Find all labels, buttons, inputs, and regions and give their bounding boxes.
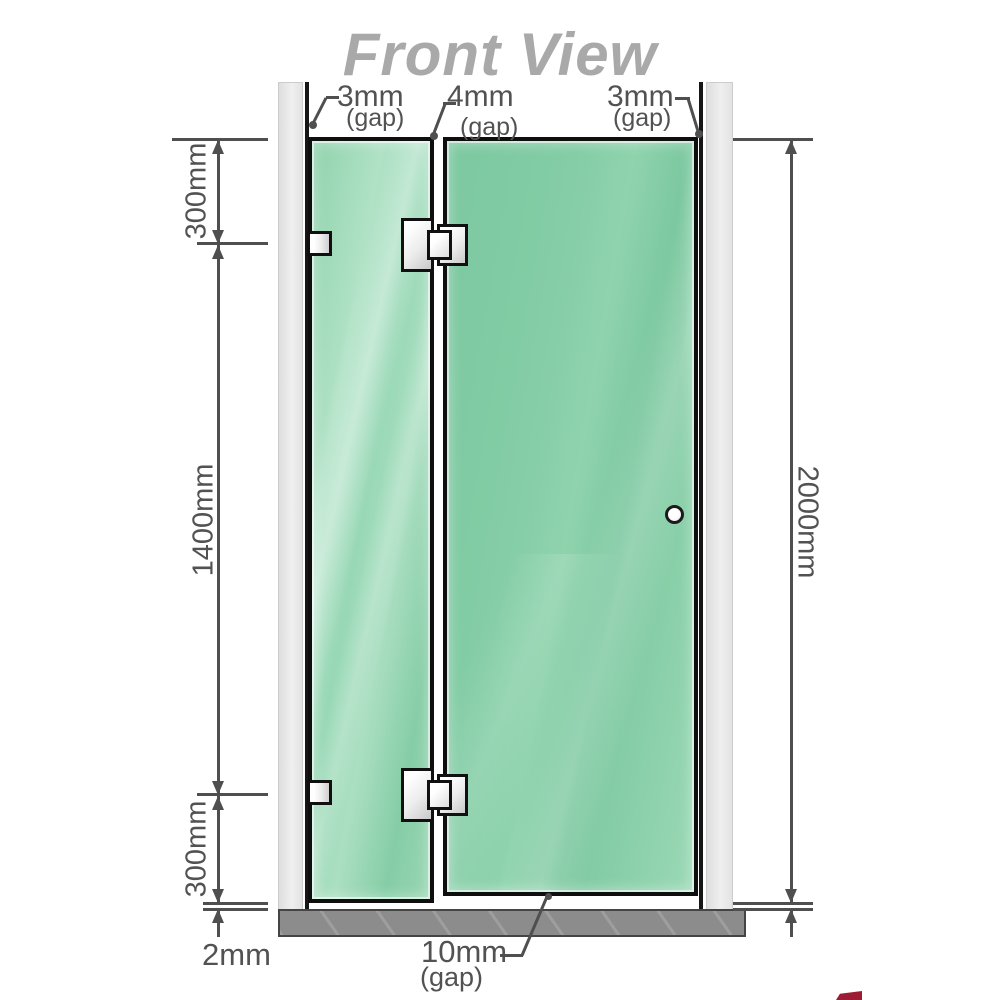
hinge-tongue [427, 780, 452, 810]
gap-label-middle-gap: (gap) [460, 113, 518, 142]
gap-label-middle-4mm: 4mm [447, 80, 514, 114]
door-handle-knob [665, 505, 684, 524]
arrowhead [212, 909, 224, 923]
leader-dot [545, 893, 552, 900]
hinge-tongue [427, 230, 452, 260]
arrowhead [785, 909, 797, 923]
glass-reflection [464, 137, 698, 896]
dimension-label-top-300mm: 300mm [181, 143, 214, 240]
arrowhead [785, 889, 797, 903]
arrowhead [785, 140, 797, 154]
leader-dot [695, 130, 703, 138]
gap-label-bottom-gap: (gap) [420, 962, 483, 993]
arrowhead [212, 230, 224, 244]
watermark-fragment [836, 991, 862, 1000]
gap-label-left-gap: (gap) [346, 104, 404, 133]
dimension-label-1400mm: 1400mm [188, 464, 221, 577]
dimension-tick [197, 793, 268, 796]
dimension-tick [197, 242, 268, 245]
arrowhead [212, 140, 224, 154]
glass-reflection [443, 554, 622, 896]
glass-hinge-bottom [401, 768, 468, 823]
right-wall-edge-line [699, 82, 703, 909]
dimension-label-2mm: 2mm [202, 937, 271, 973]
leader-line [432, 103, 447, 136]
dimension-tick [733, 138, 813, 141]
arrowhead [212, 796, 224, 810]
right-wall [706, 82, 733, 911]
diagram-title: Front View [343, 20, 657, 89]
wall-bracket-top [307, 231, 332, 256]
arrowhead [212, 245, 224, 259]
left-wall [278, 82, 303, 911]
dimension-tick [733, 902, 813, 905]
gap-label-right-gap: (gap) [613, 104, 671, 133]
leader-line [687, 98, 700, 132]
arrowhead [212, 781, 224, 795]
dimension-label-2000mm: 2000mm [791, 466, 824, 579]
leader-line [311, 97, 328, 126]
shower-screen-front-view-diagram: Front View 300mm 1400mm 30 [0, 0, 1000, 1000]
dimension-label-bottom-300mm: 300mm [181, 801, 214, 898]
floor-base [278, 909, 746, 937]
dimension-tick [733, 908, 813, 911]
door-glass-panel [443, 137, 698, 896]
arrowhead [212, 889, 224, 903]
wall-bracket-bottom [307, 780, 332, 805]
glass-hinge-top [401, 218, 468, 273]
